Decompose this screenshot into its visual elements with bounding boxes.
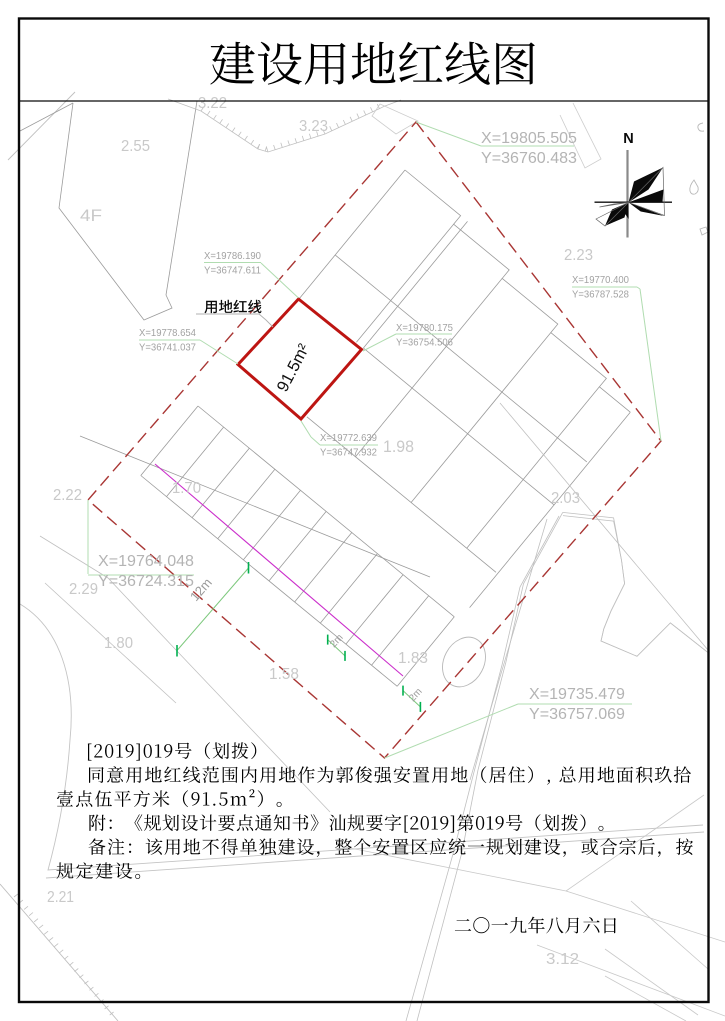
svg-text:1.70: 1.70 [172,480,201,497]
svg-text:X=19770.400: X=19770.400 [572,274,629,286]
svg-text:4F: 4F [80,206,102,225]
svg-text:3.22: 3.22 [198,95,227,112]
svg-text:Y=36760.483: Y=36760.483 [481,150,577,167]
svg-text:3.12: 3.12 [546,951,579,968]
svg-text:X=19786.190: X=19786.190 [204,250,261,262]
svg-text:X=19772.639: X=19772.639 [320,432,377,444]
svg-text:1.83: 1.83 [398,650,428,667]
svg-text:X=19805.505: X=19805.505 [481,130,577,147]
svg-text:Y=36754.506: Y=36754.506 [396,337,453,349]
svg-text:1.80: 1.80 [104,635,133,652]
svg-text:2.23: 2.23 [564,247,593,264]
svg-text:2.29: 2.29 [69,581,98,598]
svg-text:Y=36741.037: Y=36741.037 [139,342,196,354]
svg-text:Y=36747.611: Y=36747.611 [204,265,261,277]
svg-text:Y=36757.069: Y=36757.069 [529,706,625,723]
svg-text:2.21: 2.21 [47,889,74,906]
svg-text:Y=36724.315: Y=36724.315 [98,573,194,590]
svg-text:2.03: 2.03 [551,490,580,507]
svg-text:X=19780.175: X=19780.175 [396,322,453,334]
svg-text:1.58: 1.58 [269,666,299,683]
svg-text:2.22: 2.22 [53,487,82,504]
svg-text:Y=36747.932: Y=36747.932 [320,447,377,459]
svg-text:X=19778.654: X=19778.654 [139,327,196,339]
svg-text:Y=36787.528: Y=36787.528 [572,289,629,301]
svg-text:X=19735.479: X=19735.479 [529,686,625,703]
svg-text:X=19764.048: X=19764.048 [98,553,194,570]
svg-text:N: N [623,131,633,147]
svg-text:1.98: 1.98 [383,437,414,456]
svg-text:2.55: 2.55 [121,138,150,155]
svg-text:3.23: 3.23 [299,118,328,135]
